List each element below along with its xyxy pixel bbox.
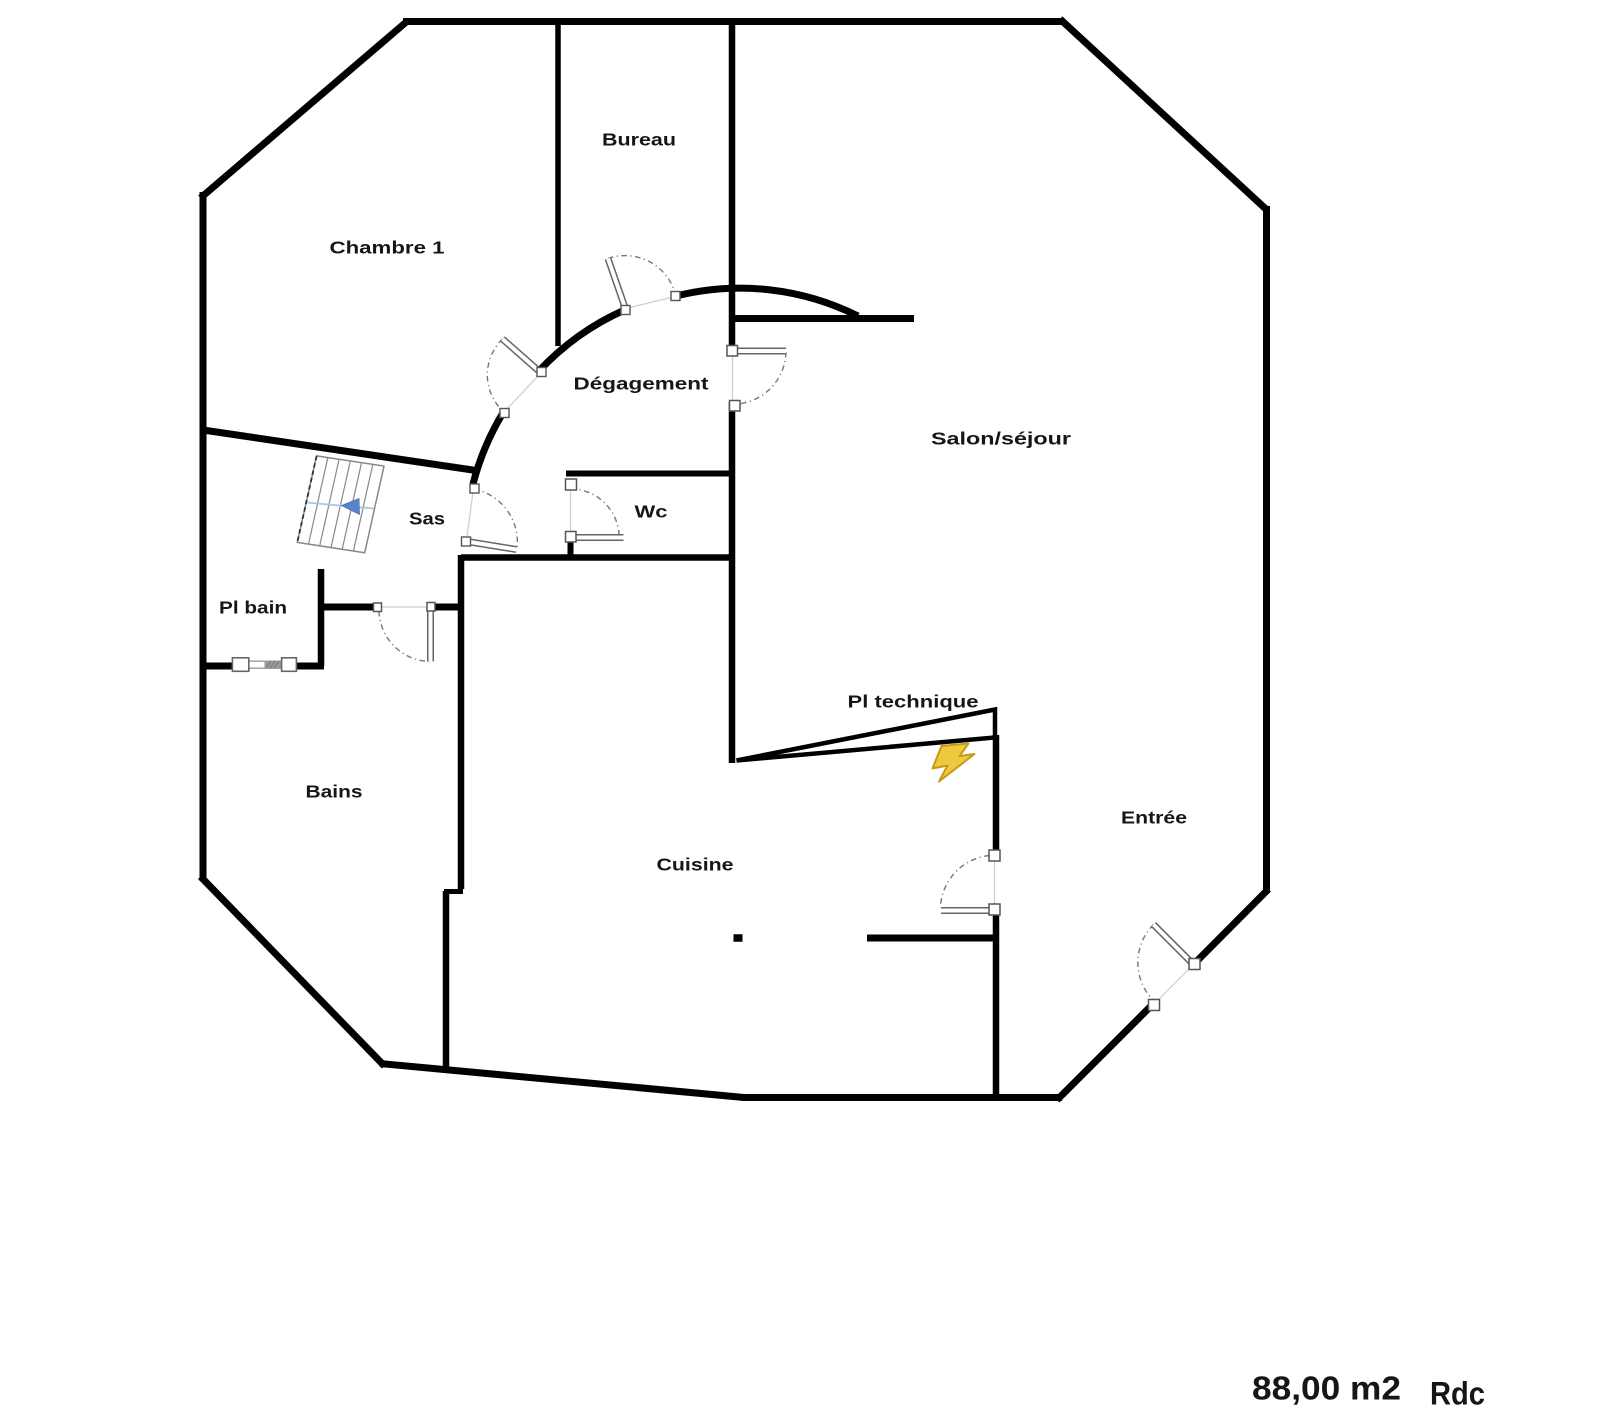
svg-text:Salon/séjour: Salon/séjour — [931, 429, 1071, 449]
svg-text:Entrée: Entrée — [1121, 808, 1187, 828]
svg-text:Rdc: Rdc — [1430, 1376, 1485, 1412]
svg-text:Wc: Wc — [635, 502, 668, 522]
svg-text:Sas: Sas — [409, 509, 445, 529]
svg-text:Chambre 1: Chambre 1 — [330, 238, 445, 258]
svg-text:88,00 m2: 88,00 m2 — [1252, 1370, 1401, 1407]
svg-text:Pl technique: Pl technique — [848, 692, 979, 712]
svg-text:Cuisine: Cuisine — [657, 855, 734, 875]
svg-text:Pl bain: Pl bain — [219, 598, 287, 618]
svg-text:Bureau: Bureau — [602, 130, 676, 150]
svg-text:Dégagement: Dégagement — [574, 374, 709, 394]
svg-text:Bains: Bains — [306, 782, 363, 802]
